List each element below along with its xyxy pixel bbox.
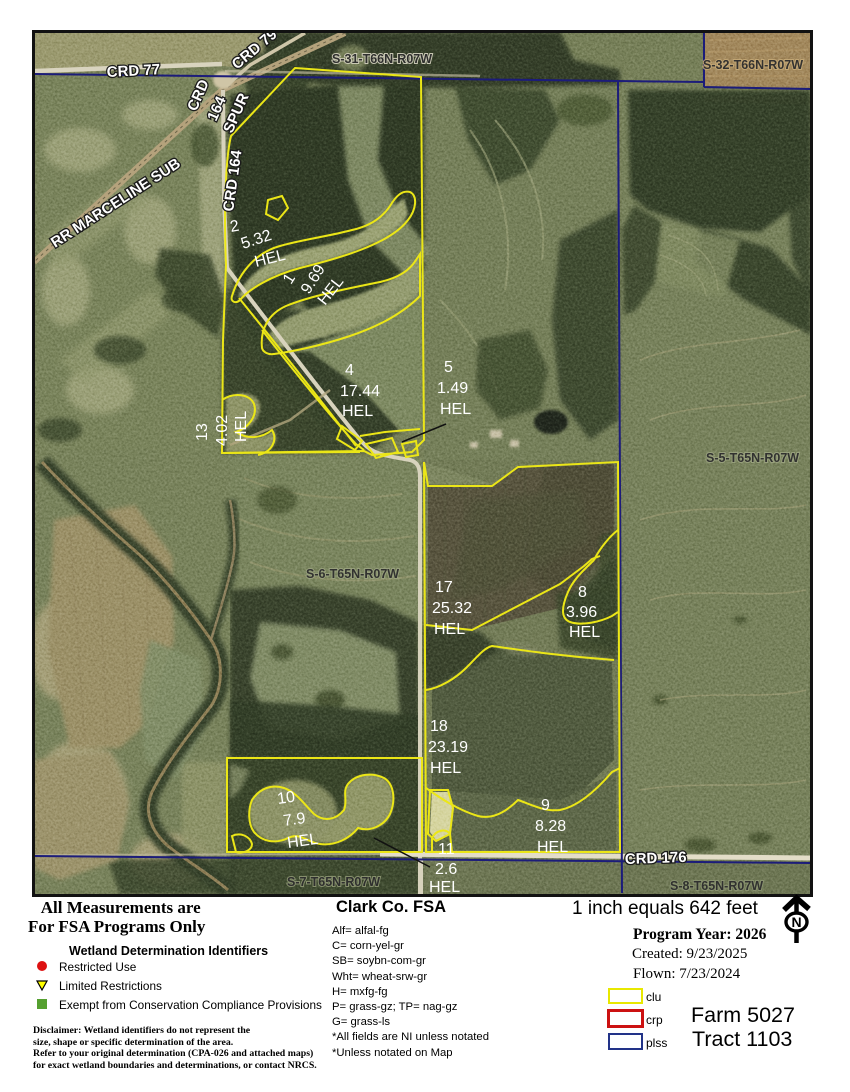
svg-text:HEL: HEL bbox=[569, 624, 600, 641]
svg-text:17.44: 17.44 bbox=[340, 383, 380, 400]
svg-text:HEL: HEL bbox=[429, 879, 460, 894]
svg-text:HEL: HEL bbox=[233, 411, 250, 442]
svg-text:18: 18 bbox=[430, 718, 448, 735]
svg-text:S-32-T66N-R07W: S-32-T66N-R07W bbox=[703, 58, 803, 72]
svg-text:4.02: 4.02 bbox=[214, 415, 231, 446]
svg-text:HEL: HEL bbox=[434, 621, 465, 638]
svg-text:1.49: 1.49 bbox=[437, 380, 468, 397]
svg-text:HEL: HEL bbox=[430, 760, 461, 777]
svg-text:7.9: 7.9 bbox=[282, 810, 306, 830]
svg-text:17: 17 bbox=[435, 579, 453, 596]
svg-text:4: 4 bbox=[345, 362, 354, 379]
svg-text:8: 8 bbox=[578, 584, 587, 601]
svg-text:HEL: HEL bbox=[537, 839, 568, 856]
svg-text:23.19: 23.19 bbox=[428, 739, 468, 756]
svg-text:11: 11 bbox=[438, 841, 455, 858]
svg-text:10: 10 bbox=[276, 789, 296, 808]
svg-text:S-8-T65N-R07W: S-8-T65N-R07W bbox=[670, 879, 763, 893]
svg-text:S-7-T65N-R07W: S-7-T65N-R07W bbox=[287, 875, 380, 889]
svg-text:2.6: 2.6 bbox=[435, 861, 457, 878]
svg-text:5: 5 bbox=[444, 359, 453, 376]
svg-text:N: N bbox=[791, 914, 801, 930]
svg-text:S-6-T65N-R07W: S-6-T65N-R07W bbox=[306, 567, 399, 581]
svg-text:3.96: 3.96 bbox=[566, 604, 597, 621]
svg-text:CRD 176: CRD 176 bbox=[625, 849, 687, 868]
svg-text:25.32: 25.32 bbox=[432, 600, 472, 617]
svg-text:HEL: HEL bbox=[440, 401, 471, 418]
svg-text:CRD 77: CRD 77 bbox=[106, 61, 160, 81]
svg-text:S-5-T65N-R07W: S-5-T65N-R07W bbox=[706, 451, 799, 465]
svg-text:13: 13 bbox=[194, 423, 211, 441]
svg-text:8.28: 8.28 bbox=[535, 818, 566, 835]
svg-text:HEL: HEL bbox=[342, 403, 373, 420]
svg-text:S-31-T66N-R07W: S-31-T66N-R07W bbox=[332, 52, 432, 66]
svg-text:9: 9 bbox=[541, 797, 550, 814]
